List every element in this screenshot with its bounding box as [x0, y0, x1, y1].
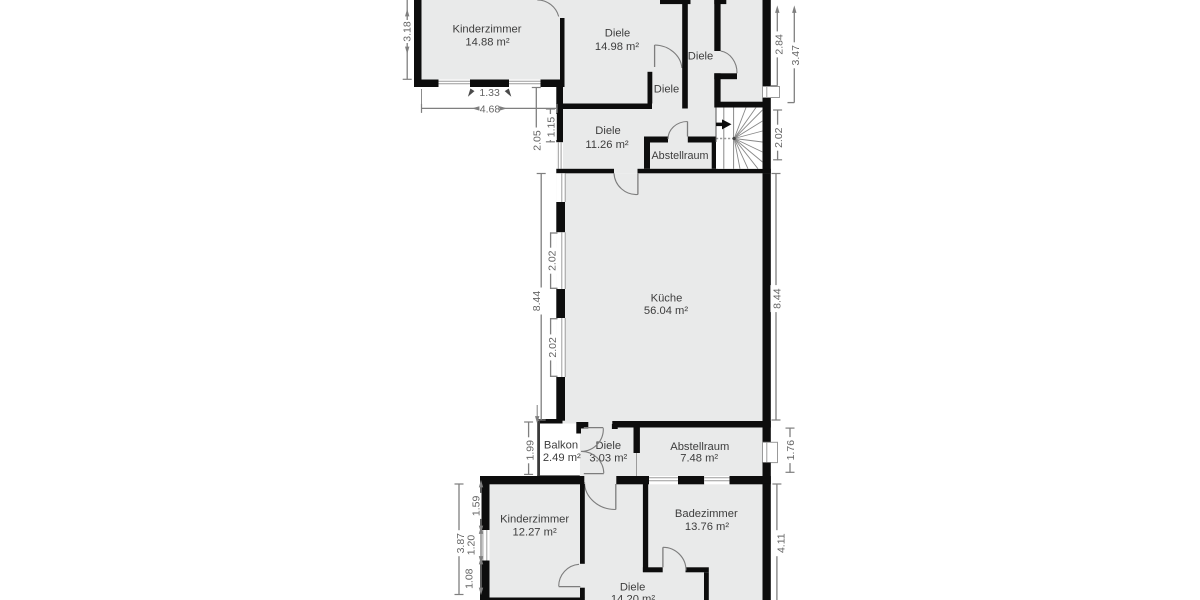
svg-text:Küche: Küche — [651, 293, 683, 305]
svg-text:2.05: 2.05 — [532, 130, 544, 151]
svg-text:Diele: Diele — [688, 51, 714, 63]
svg-text:Abstellraum: Abstellraum — [651, 150, 708, 162]
svg-text:Balkon: Balkon — [544, 439, 578, 451]
svg-text:14.88 m²: 14.88 m² — [465, 37, 509, 49]
svg-text:Kinderzimmer: Kinderzimmer — [452, 24, 521, 36]
svg-text:1.99: 1.99 — [525, 440, 537, 461]
svg-text:1.08: 1.08 — [463, 568, 475, 589]
svg-text:8.44: 8.44 — [771, 288, 783, 309]
svg-text:Diele: Diele — [605, 28, 631, 40]
svg-text:Abstellraum: Abstellraum — [670, 441, 729, 453]
svg-text:1.33: 1.33 — [479, 87, 500, 99]
svg-text:14.98 m²: 14.98 m² — [595, 41, 639, 53]
svg-text:1.20: 1.20 — [465, 535, 477, 556]
svg-text:Diele: Diele — [620, 582, 646, 594]
svg-text:2.02: 2.02 — [773, 127, 785, 148]
svg-text:1.59: 1.59 — [470, 496, 482, 517]
svg-text:4.11: 4.11 — [775, 533, 787, 553]
svg-text:14.20 m²: 14.20 m² — [611, 594, 655, 600]
svg-text:11.26 m²: 11.26 m² — [585, 139, 629, 151]
svg-text:56.04 m²: 56.04 m² — [644, 305, 688, 317]
svg-text:1.15: 1.15 — [546, 117, 558, 138]
svg-text:2.84: 2.84 — [774, 34, 786, 55]
svg-text:2.02: 2.02 — [547, 337, 559, 358]
svg-text:2.02: 2.02 — [547, 250, 559, 271]
svg-text:13.76 m²: 13.76 m² — [685, 521, 729, 533]
svg-text:Badezimmer: Badezimmer — [675, 508, 738, 520]
svg-text:3.47: 3.47 — [790, 45, 802, 66]
svg-text:Kinderzimmer: Kinderzimmer — [500, 514, 569, 526]
svg-text:3.03 m²: 3.03 m² — [589, 453, 627, 465]
svg-text:12.27 m²: 12.27 m² — [513, 527, 557, 539]
svg-text:Diele: Diele — [595, 125, 621, 137]
svg-text:1.76: 1.76 — [785, 440, 797, 461]
svg-text:8.44: 8.44 — [531, 291, 543, 312]
svg-text:7.48 m²: 7.48 m² — [680, 453, 718, 465]
svg-text:Diele: Diele — [654, 84, 680, 96]
svg-text:3.18: 3.18 — [402, 21, 414, 42]
svg-text:4.68: 4.68 — [480, 103, 501, 115]
svg-text:2.49 m²: 2.49 m² — [543, 452, 581, 464]
